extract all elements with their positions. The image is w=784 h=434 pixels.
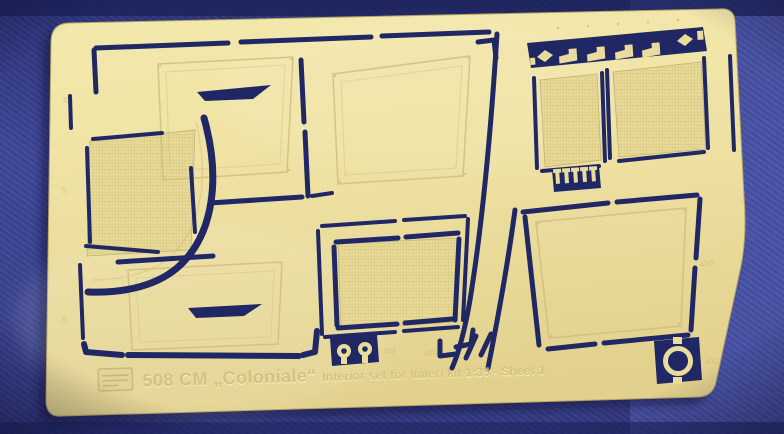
photo-stage: 4 5 6 403 420 410 400 508 CM „Coloniale“…: [0, 0, 784, 434]
photo-vignette: [0, 0, 784, 434]
photo-of-brass-etch-sheet: 4 5 6 403 420 410 400 508 CM „Coloniale“…: [0, 0, 784, 434]
